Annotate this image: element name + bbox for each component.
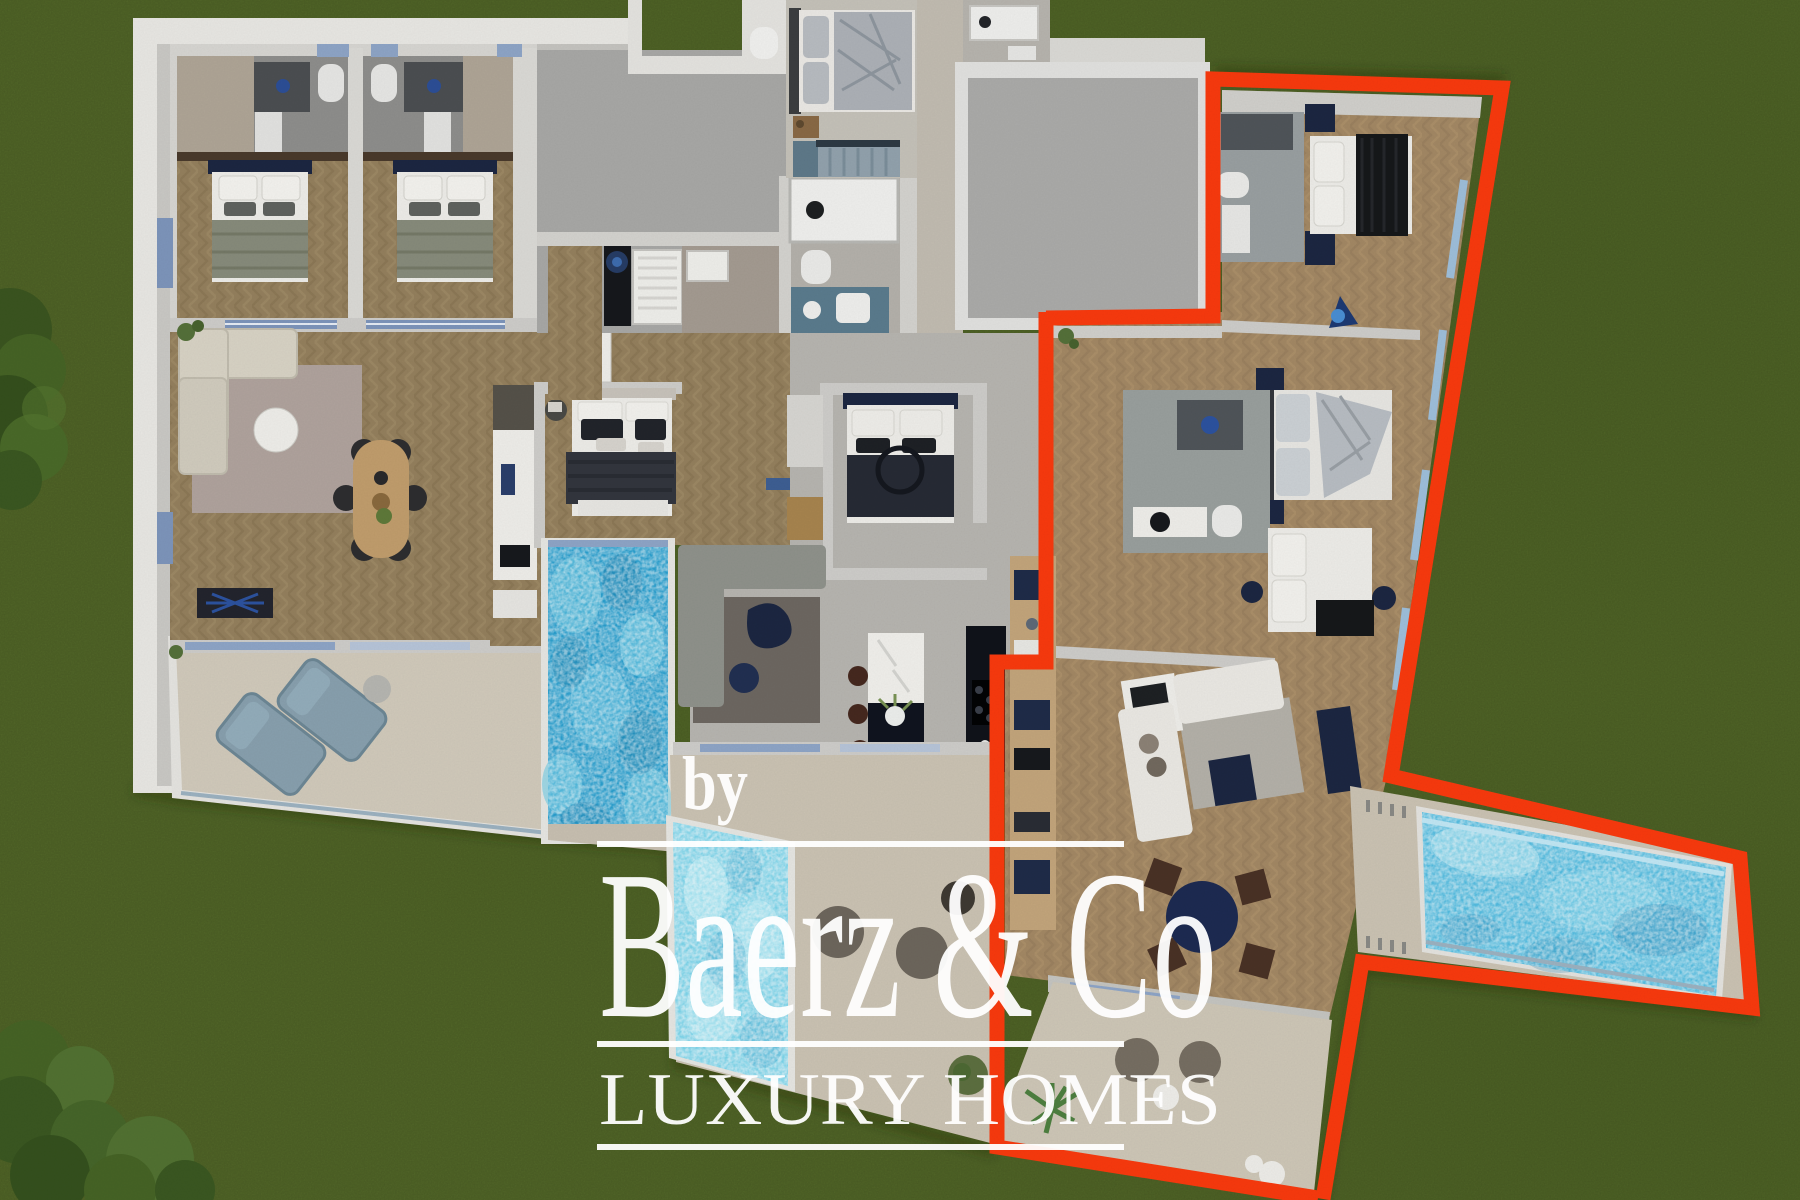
svg-text:Baerz & Co: Baerz & Co [599, 827, 1217, 1062]
svg-text:LUXURY HOMES: LUXURY HOMES [599, 1059, 1221, 1141]
svg-text:by: by [682, 742, 748, 826]
